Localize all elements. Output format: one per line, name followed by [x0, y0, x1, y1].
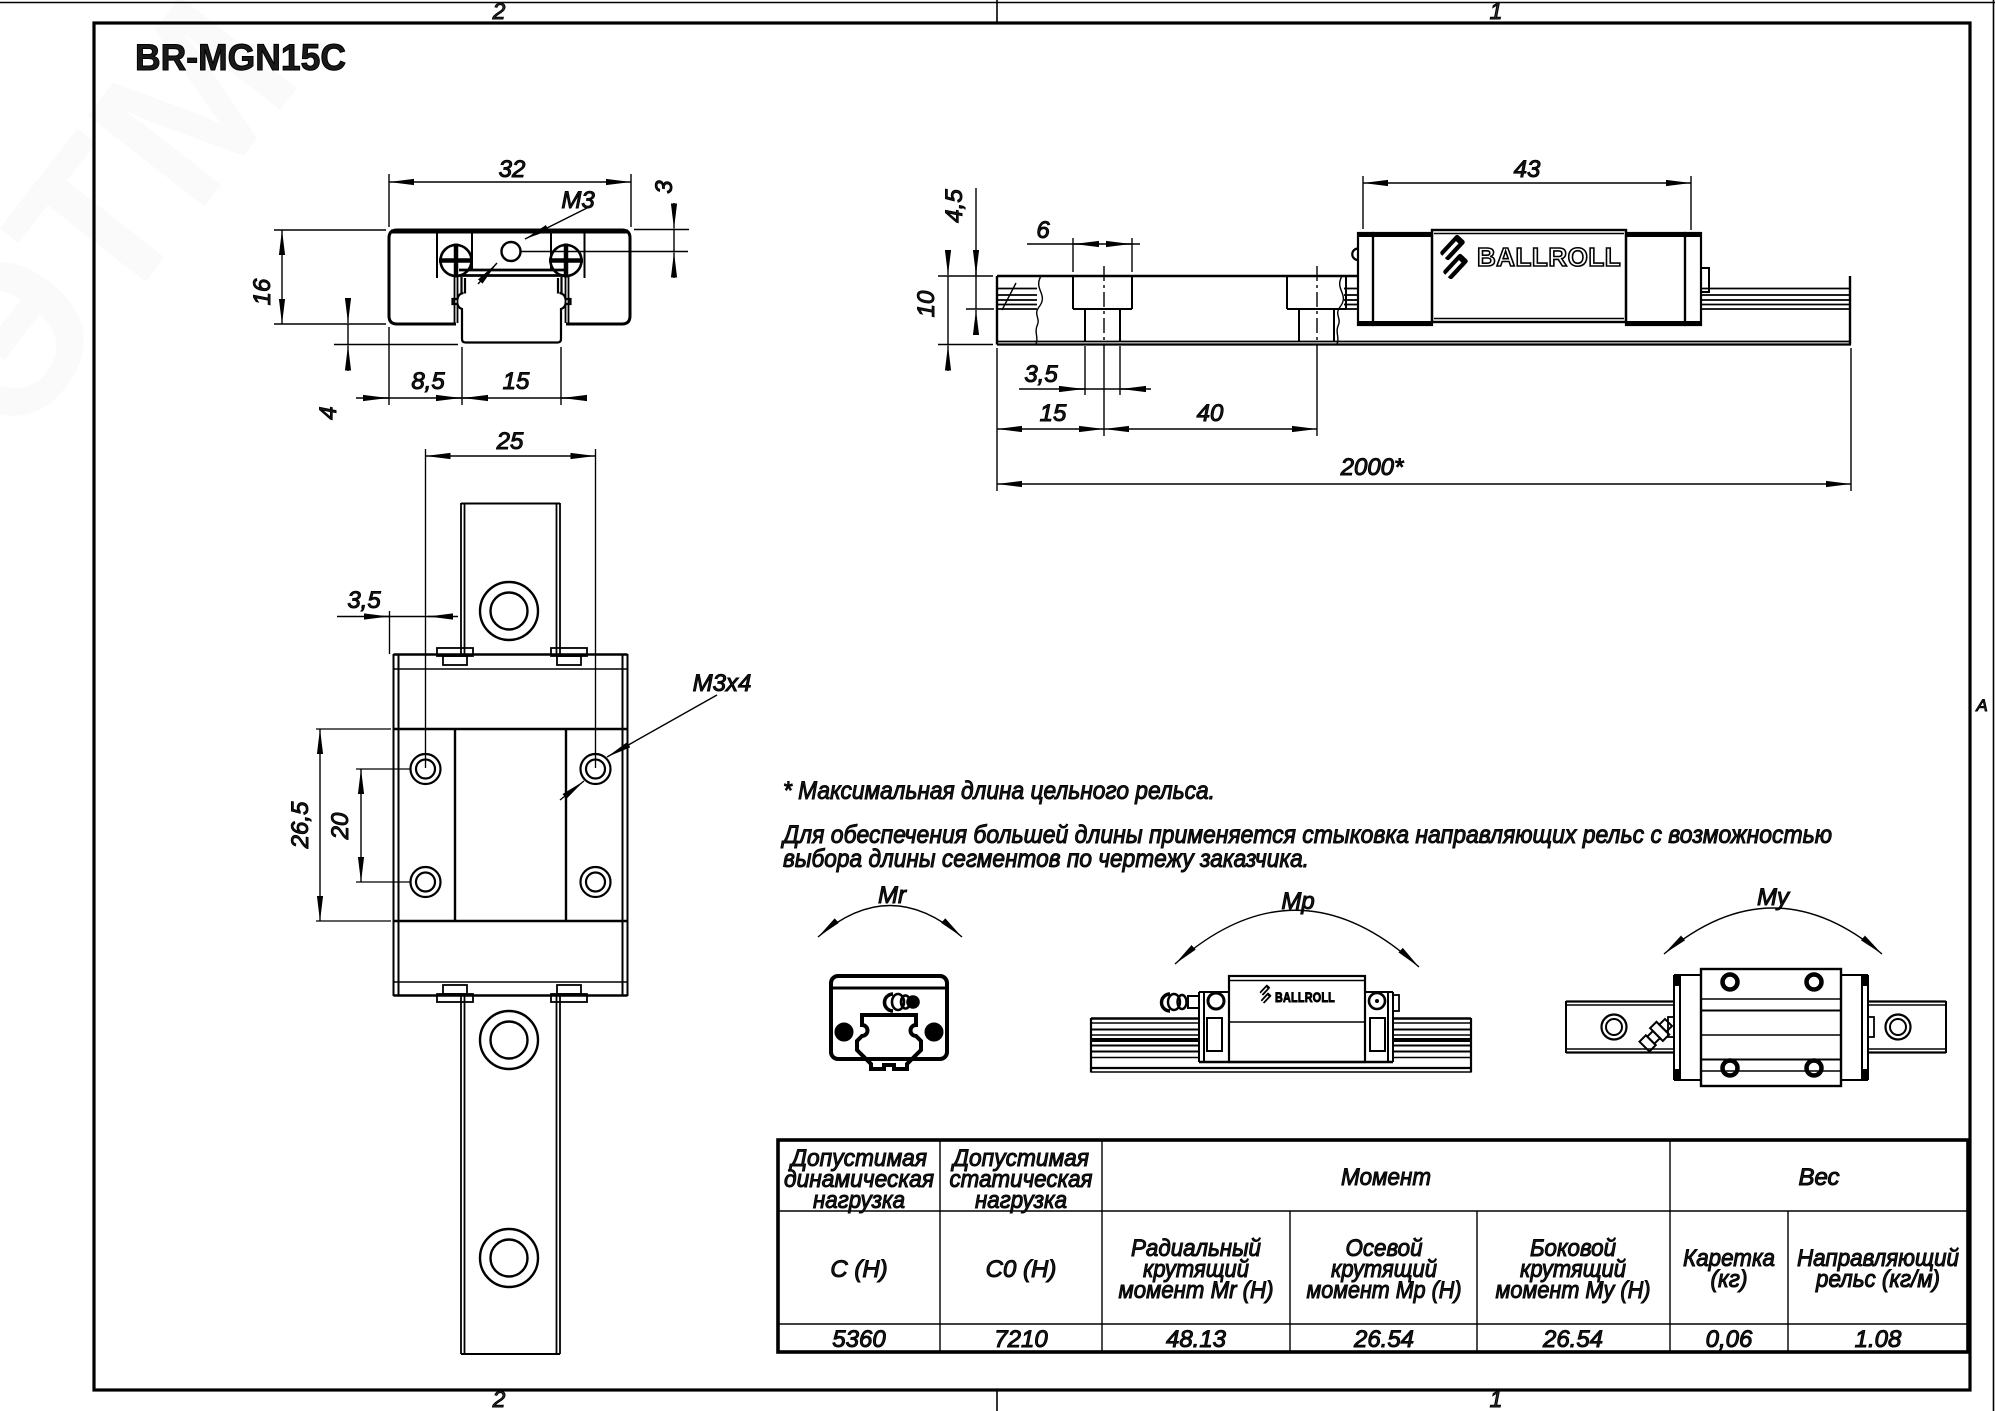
svg-text:3,5: 3,5 — [1024, 361, 1058, 388]
svg-text:6: 6 — [1036, 217, 1050, 244]
svg-text:20: 20 — [327, 812, 354, 840]
svg-text:16: 16 — [249, 278, 276, 305]
svg-text:1: 1 — [1490, 1386, 1503, 1411]
svg-text:8,5: 8,5 — [411, 368, 445, 395]
svg-text:2000*: 2000* — [1340, 454, 1404, 481]
svg-text:1: 1 — [1490, 0, 1503, 24]
svg-text:C0 (H): C0 (H) — [986, 1256, 1057, 1283]
svg-text:нагрузка: нагрузка — [975, 1187, 1067, 1214]
svg-text:43: 43 — [1514, 156, 1541, 183]
svg-text:(кг): (кг) — [1711, 1266, 1748, 1293]
svg-text:момент My (H): момент My (H) — [1496, 1277, 1651, 1304]
svg-text:2: 2 — [492, 1386, 506, 1411]
svg-text:3,5: 3,5 — [347, 587, 381, 614]
svg-text:M3: M3 — [561, 187, 595, 214]
svg-text:* Максимальная длина цельного: * Максимальная длина цельного рельса. — [783, 777, 1215, 805]
svg-text:M3x4: M3x4 — [693, 670, 752, 697]
svg-text:момент Mp (H): момент Mp (H) — [1307, 1277, 1462, 1304]
svg-text:26.54: 26.54 — [1542, 1326, 1603, 1353]
svg-text:рельс (кг/м): рельс (кг/м) — [1815, 1266, 1940, 1293]
svg-text:15: 15 — [503, 368, 530, 395]
svg-text:A: A — [1975, 696, 1987, 715]
svg-text:26.54: 26.54 — [1353, 1326, 1414, 1353]
svg-text:Момент: Момент — [1341, 1164, 1431, 1191]
svg-text:BR-MGN15C: BR-MGN15C — [135, 37, 346, 78]
svg-text:40: 40 — [1197, 400, 1224, 427]
svg-text:нагрузка: нагрузка — [813, 1187, 905, 1214]
svg-text:момент Mr (H): момент Mr (H) — [1119, 1277, 1274, 1304]
svg-text:26,5: 26,5 — [287, 801, 314, 849]
svg-text:1.08: 1.08 — [1855, 1326, 1902, 1353]
svg-text:10: 10 — [913, 290, 940, 317]
svg-text:2: 2 — [492, 0, 506, 24]
svg-text:48.13: 48.13 — [1166, 1326, 1227, 1353]
svg-text:4,5: 4,5 — [941, 189, 968, 223]
svg-text:32: 32 — [499, 156, 526, 183]
svg-text:C (H): C (H) — [830, 1256, 887, 1283]
svg-text:15: 15 — [1040, 400, 1067, 427]
svg-text:5360: 5360 — [832, 1326, 886, 1353]
svg-text:25: 25 — [496, 428, 524, 455]
svg-text:3: 3 — [651, 180, 678, 194]
svg-text:Вес: Вес — [1798, 1164, 1839, 1191]
svg-text:BALLROLL: BALLROLL — [1477, 242, 1621, 272]
svg-text:0,06: 0,06 — [1706, 1326, 1753, 1353]
svg-text:7210: 7210 — [994, 1326, 1048, 1353]
svg-text:4: 4 — [315, 406, 342, 419]
svg-text:выбора длины сегментов по черт: выбора длины сегментов по чертежу заказч… — [783, 845, 1309, 873]
svg-text:My: My — [1757, 884, 1791, 911]
svg-text:BALLROLL: BALLROLL — [1275, 989, 1335, 1005]
